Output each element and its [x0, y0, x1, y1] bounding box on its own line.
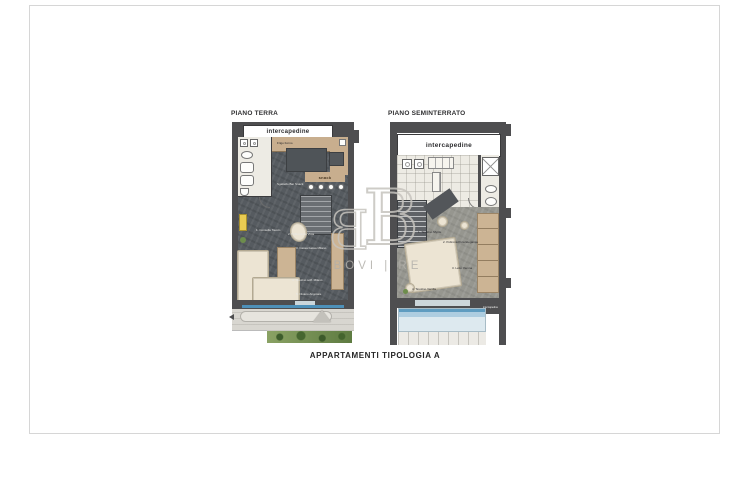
- shower-icon: [482, 157, 499, 176]
- snack-bar: snack: [305, 172, 345, 182]
- plant-icon: [403, 289, 408, 294]
- entry-arrow-icon: [229, 314, 234, 320]
- terrace-step-line: [232, 330, 267, 331]
- wardrobe: [477, 213, 499, 293]
- intercapedine-box: intercapedine: [397, 134, 501, 157]
- washer-icon: [402, 159, 412, 169]
- floorplan-sheet: PIANO TERRA intercapedine Frigo Forno: [0, 0, 750, 500]
- wall-left: [390, 133, 397, 345]
- intercapedine-label: intercapedine: [267, 129, 310, 135]
- furniture-label: 4. Tavolino soff. Milano: [292, 279, 322, 282]
- dryer-icon: [414, 159, 424, 169]
- furniture-label: 2. Poltrona La Vista: [288, 233, 314, 236]
- intercapedine-label: intercapedine: [426, 142, 472, 149]
- sheet-caption: APPARTAMENTI TIPOLOGIA A: [225, 351, 525, 360]
- furniture-label: 5. Divano Angolare: [296, 293, 321, 296]
- kitchen-note-label: Frigo Forno: [277, 142, 293, 145]
- toilet-icon: [485, 197, 497, 206]
- light-well: [398, 308, 486, 332]
- stool-icon: [308, 184, 314, 190]
- wall-nub-right: [506, 208, 511, 218]
- washbasin-icon: [485, 185, 497, 193]
- north-arrow-icon: [313, 310, 331, 322]
- plan-piano-terra: PIANO TERRA intercapedine Frigo Forno: [225, 108, 365, 368]
- boiler-panel: [239, 214, 247, 231]
- washbasin-icon: [241, 151, 253, 159]
- wall-nub-right: [506, 124, 511, 136]
- furniture-label: 1. Tavolino Myrtle: [418, 231, 441, 234]
- water-channel: [242, 305, 344, 308]
- shower-tray-icon: [240, 175, 254, 186]
- plan-terra-title: PIANO TERRA: [231, 110, 278, 117]
- plan-seminterrato-title: PIANO SEMINTERRATO: [388, 110, 465, 117]
- toilet-icon: [240, 188, 249, 196]
- washer-icon: [240, 139, 248, 147]
- pouf: [460, 221, 469, 230]
- dryer-icon: [250, 139, 258, 147]
- closet: [428, 157, 454, 169]
- page-border: [29, 5, 720, 434]
- furniture-label: 4. Tavolino Vanilla: [412, 288, 436, 291]
- sideboard: [331, 233, 344, 290]
- closet: [432, 172, 441, 192]
- wall-top: [390, 122, 506, 133]
- furniture-label: Sgabello Bar Snack: [277, 183, 303, 186]
- snack-label: snack: [319, 175, 332, 180]
- lower-paving: [398, 332, 486, 345]
- furniture-label: 3. Cassa bassa Milano: [296, 247, 326, 250]
- plan-piano-seminterrato: PIANO SEMINTERRATO intercapedine: [385, 108, 520, 368]
- stool-icon: [318, 184, 324, 190]
- window-opening: [415, 300, 470, 306]
- bathtub-icon: [240, 162, 254, 173]
- wall-right: [348, 137, 354, 312]
- garden-strip: [267, 331, 352, 343]
- furniture-label: 1. Consolle Tavolo: [256, 229, 280, 232]
- kitchen-island: [286, 148, 327, 172]
- stool-icon: [338, 184, 344, 190]
- furniture-label: 2. Poltrona Pura Elegance: [443, 241, 478, 244]
- sink-icon: [339, 139, 346, 146]
- stool-icon: [328, 184, 334, 190]
- armchair: [437, 216, 448, 227]
- furniture-label: 3. Letto Vienna: [452, 267, 472, 270]
- wall-nub-right: [506, 278, 511, 288]
- appliance-block: [329, 152, 344, 166]
- plant-icon: [240, 237, 246, 243]
